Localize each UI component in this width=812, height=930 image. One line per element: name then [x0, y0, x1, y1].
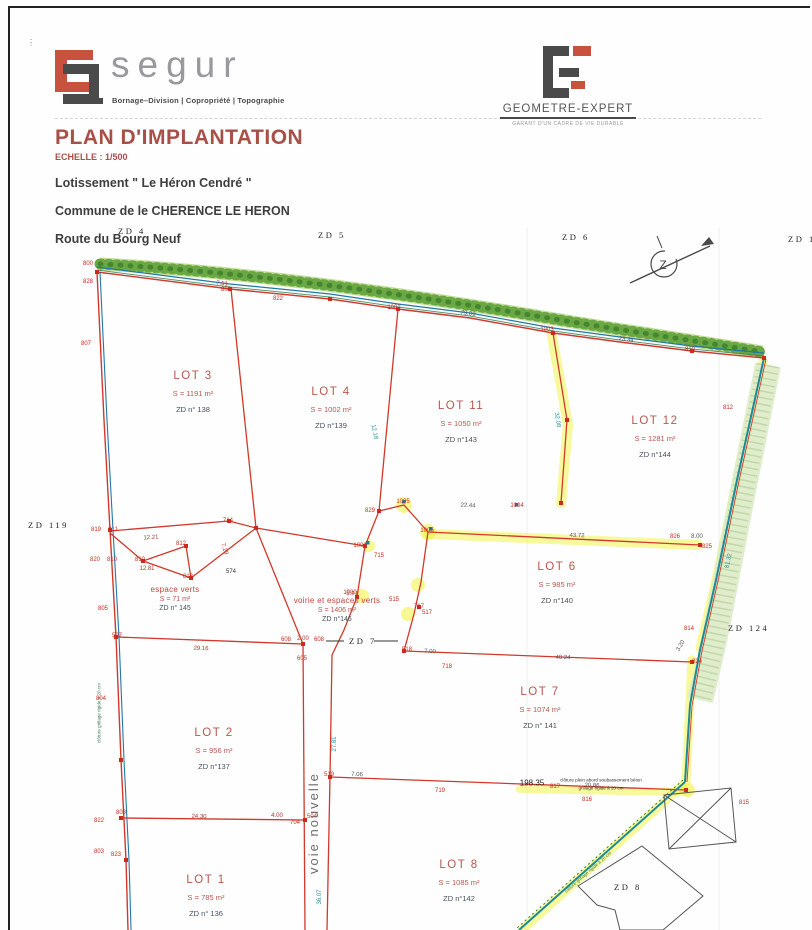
lot-label: LOT 6 S = 985 m² ZD n°140 — [537, 561, 576, 605]
survey-point-number: 820 — [90, 557, 100, 563]
green-area-name: voirie et espaces verts — [294, 596, 381, 605]
survey-point-number: 1005 — [396, 499, 409, 505]
lot-label: LOT 11 S = 1050 m² ZD n°143 — [438, 400, 484, 444]
lot-parcel-number: ZD n°139 — [310, 421, 351, 430]
survey-point-number: 803 — [94, 849, 104, 855]
survey-point-number: 806 — [221, 287, 231, 293]
survey-point-number: 719 — [435, 788, 445, 794]
site-plan: ZD 4ZD 5ZD 6ZD 11ZD 119ZD 124ZD 7ZD 8 LO… — [0, 0, 812, 930]
survey-point-number: 1003 — [540, 327, 553, 333]
survey-point-number: 822 — [94, 818, 104, 824]
survey-point-number: 817 — [550, 784, 560, 790]
dimension-label: 5.91 — [346, 591, 358, 598]
scanned-plan-page: ⋮ segur Bornage–Division | Copropriété |… — [0, 0, 812, 930]
survey-point-number: 810 — [135, 557, 145, 563]
parcel-zone-label: ZD 5 — [318, 230, 346, 240]
survey-point-number: 507 — [112, 633, 122, 639]
lot-label: LOT 1 S = 785 m² ZD n° 136 — [186, 874, 225, 918]
survey-point-number: 814 — [684, 626, 694, 632]
dimension-label: 40.24 — [555, 655, 570, 662]
survey-point-number: 519 — [324, 772, 334, 778]
lot-area: S = 956 m² — [194, 746, 233, 755]
dimension-label: 43.72 — [569, 533, 584, 540]
survey-point-number: 718 — [442, 664, 452, 670]
lot-name: LOT 12 — [631, 415, 678, 427]
dimension-label: 198.35 — [520, 779, 544, 788]
road-name-label: voie nouvelle — [306, 772, 321, 874]
lot-label: LOT 4 S = 1002 m² ZD n°139 — [310, 386, 351, 430]
plan-linework — [0, 0, 812, 930]
lot-parcel-number: ZD n°142 — [438, 894, 479, 903]
annotation-note: grillage rigide à 20 cm — [579, 786, 624, 791]
lot-label: LOT 8 S = 1085 m² ZD n°142 — [438, 859, 479, 903]
survey-point-number: 829 — [365, 508, 375, 514]
survey-point-number: 1002 — [387, 305, 400, 311]
parcel-zone-label: ZD 6 — [562, 232, 590, 242]
lot-label: LOT 7 S = 1074 m² ZD n° 141 — [519, 686, 560, 730]
annotation-note: clôture grillage rigide à 20 cm — [97, 683, 102, 743]
north-arrow — [630, 236, 714, 283]
dimension-label: 4.00 — [271, 813, 283, 819]
parcel-zone-label: ZD 11 — [788, 234, 812, 244]
survey-point-number: 819 — [91, 527, 101, 533]
survey-point-number: 517 — [422, 610, 432, 616]
survey-point-number: 811 — [108, 527, 118, 533]
green-area-label: voirie et espaces verts S = 1406 m² ZD n… — [294, 596, 381, 623]
survey-point-number: 808 — [116, 810, 126, 816]
dimension-label: 7.00 — [424, 649, 436, 655]
survey-point-number: 828 — [83, 279, 93, 285]
parcel-zone-label: ZD 4 — [118, 226, 146, 236]
dimension-label: 29.16 — [193, 646, 208, 653]
lot-area: S = 1191 m² — [173, 389, 214, 398]
parcel-zone-label: ZD 7 — [349, 636, 377, 646]
lot-name: LOT 11 — [438, 400, 484, 412]
dimension-label: 8.00 — [691, 534, 703, 540]
lot-area: S = 1074 m² — [519, 705, 560, 714]
parcel-zone-label: ZD 124 — [728, 623, 769, 633]
green-area-label: espace verts S = 71 m² ZD n° 145 — [151, 585, 200, 612]
lot-parcel-number: ZD n°140 — [537, 596, 576, 605]
lot-label: LOT 2 S = 956 m² ZD n°137 — [194, 727, 233, 771]
lot-parcel-number: ZD n°137 — [194, 762, 233, 771]
dimension-label: 7.51 — [216, 280, 228, 287]
survey-point-number: 704 — [290, 820, 300, 826]
survey-point-number: 813 — [183, 574, 193, 580]
survey-point-number: 822 — [273, 296, 283, 302]
green-area-parcel: ZD n°146 — [294, 616, 381, 623]
survey-point-number: 800 — [83, 261, 93, 267]
survey-point-number: 805 — [98, 606, 108, 612]
parcel-zone-label: ZD 119 — [28, 520, 69, 530]
survey-point-number: 824 — [692, 659, 702, 665]
lot-area: S = 1281 m² — [631, 434, 678, 443]
green-area-parcel: ZD n° 145 — [151, 605, 200, 612]
survey-point-number: 515 — [389, 597, 399, 603]
lot-parcel-number: ZD n° 138 — [173, 405, 214, 414]
survey-point-number: 608 — [314, 637, 324, 643]
survey-point-number: 825 — [702, 544, 712, 550]
survey-point-number: 807 — [81, 341, 91, 347]
parcel-zone-label: ZD 8 — [614, 882, 642, 892]
annotation-note: clôture plein abord soubassement béton — [560, 778, 642, 783]
lot-name: LOT 3 — [173, 370, 214, 382]
survey-point-number: 715 — [374, 553, 384, 559]
survey-point-number: 812 — [176, 541, 186, 547]
dimension-label: 12.21 — [143, 534, 158, 541]
lot-area: S = 1002 m² — [310, 405, 351, 414]
lot-parcel-number: ZD n° 136 — [186, 909, 225, 918]
lot-area: S = 785 m² — [186, 893, 225, 902]
lot-name: LOT 6 — [537, 561, 576, 573]
lot-parcel-number: ZD n°143 — [438, 435, 484, 444]
survey-point-number: 1001 — [353, 543, 366, 549]
survey-point-number: 816 — [582, 797, 592, 803]
survey-point-number: 1006 — [420, 528, 433, 534]
survey-point-number: 826 — [670, 534, 680, 540]
lot-name: LOT 8 — [438, 859, 479, 871]
green-area-surface: S = 1406 m² — [294, 607, 381, 614]
green-area-name: espace verts — [151, 585, 200, 594]
lot-name: LOT 1 — [186, 874, 225, 886]
lot-area: S = 1050 m² — [438, 419, 484, 428]
lot-area: S = 985 m² — [537, 580, 576, 589]
dimension-label: 36.07 — [317, 889, 323, 904]
lot-parcel-number: ZD n°144 — [631, 450, 678, 459]
survey-point-number: 815 — [739, 800, 749, 806]
survey-point-number: 810 — [107, 557, 117, 563]
lot-area: S = 1085 m² — [438, 878, 479, 887]
survey-point-number: 823 — [111, 852, 121, 858]
lot-parcel-number: ZD n° 141 — [519, 721, 560, 730]
green-area-surface: S = 71 m² — [151, 596, 200, 603]
lot-label: LOT 12 S = 1281 m² ZD n°144 — [631, 415, 678, 459]
dimension-label: 27.81 — [332, 736, 338, 751]
dimension-label: 12.81 — [139, 566, 154, 572]
lot-label: LOT 3 S = 1191 m² ZD n° 138 — [173, 370, 214, 414]
lot-name: LOT 2 — [194, 727, 233, 739]
lot-name: LOT 4 — [310, 386, 351, 398]
dimension-label: 2.00 — [297, 636, 309, 642]
survey-point-number: 605 — [297, 656, 307, 662]
survey-point-number: 714 — [223, 518, 233, 524]
dimension-label: 22.44 — [460, 503, 475, 510]
dimension-label: 574 — [226, 569, 236, 575]
dimension-label: 7.06 — [351, 772, 363, 778]
survey-point-number: 1004 — [510, 503, 523, 509]
lot-name: LOT 7 — [519, 686, 560, 698]
dimension-label: 24.30 — [191, 814, 206, 820]
survey-point-number: 518 — [402, 647, 412, 653]
survey-point-number: 810 — [685, 347, 695, 353]
annotation-note: Z — [659, 258, 666, 272]
survey-point-number: 608 — [281, 637, 291, 643]
survey-point-number: 812 — [723, 405, 733, 411]
